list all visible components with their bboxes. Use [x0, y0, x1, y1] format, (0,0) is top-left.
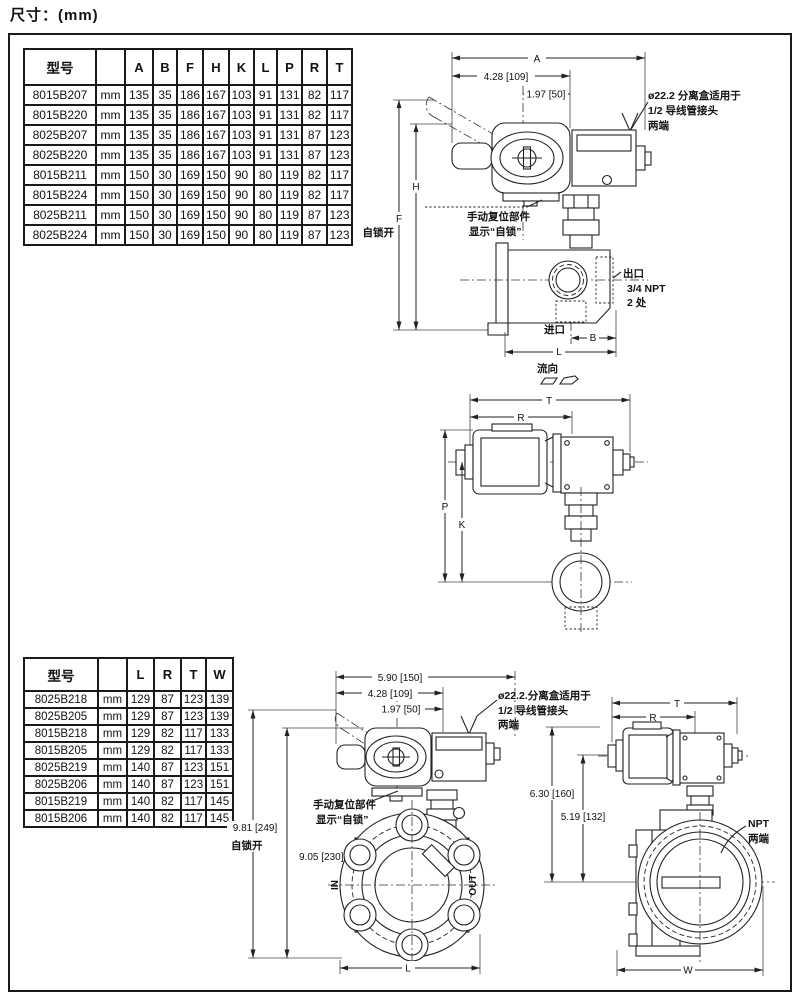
lock-open-label: 自锁开	[363, 226, 395, 239]
value-cell: 103	[229, 105, 254, 125]
value-cell: 117	[181, 725, 206, 742]
annotation-manual-line2: 显示“自锁”	[316, 813, 369, 826]
column-header	[98, 658, 127, 691]
table-row: 8015B206mm14082117145	[24, 810, 233, 827]
value-cell: 167	[203, 125, 229, 145]
value-cell: 82	[302, 165, 327, 185]
value-cell: 80	[254, 165, 277, 185]
table-row: 8015B218mm12982117133	[24, 725, 233, 742]
annotation-conduit-line3: 两端	[648, 119, 669, 132]
flow-direction: 流向	[537, 362, 578, 384]
value-cell: 123	[327, 225, 352, 245]
model-cell: 8025B211	[24, 205, 96, 225]
unit-cell: mm	[98, 691, 127, 708]
value-cell: 82	[302, 85, 327, 105]
value-cell: 30	[153, 165, 177, 185]
value-cell: 135	[125, 85, 153, 105]
value-cell: 123	[327, 125, 352, 145]
value-cell: 80	[254, 185, 277, 205]
value-cell: 186	[177, 105, 203, 125]
value-cell: 87	[154, 708, 181, 725]
table-row: 8015B211mm15030169150908011982117	[24, 165, 352, 185]
value-cell: 117	[327, 165, 352, 185]
value-cell: 123	[181, 691, 206, 708]
value-cell: 35	[153, 85, 177, 105]
model-cell: 8015B220	[24, 105, 96, 125]
outlet-label-line3: 2 处	[627, 296, 647, 309]
coil-assembly	[598, 722, 748, 785]
bolt-icon	[629, 934, 637, 946]
npt-label-line2: 两端	[748, 832, 769, 845]
right-connector	[724, 744, 732, 767]
table-row: 8015B220mm135351861671039113182117	[24, 105, 352, 125]
table-row: 8025B206mm14087123151	[24, 776, 233, 793]
table-row: 8025B219mm14087123151	[24, 759, 233, 776]
table-row: 8025B220mm135351861671039113187123	[24, 145, 352, 165]
value-cell: 35	[153, 125, 177, 145]
dimension-table-2: 型号LRTW8025B218mm129871231398025B205mm129…	[23, 657, 234, 828]
value-cell: 129	[127, 708, 154, 725]
bolt-icon	[629, 903, 637, 915]
value-cell: 186	[177, 85, 203, 105]
model-column-header: 型号	[24, 49, 96, 85]
value-cell: 150	[203, 225, 229, 245]
model-cell: 8015B218	[24, 725, 98, 742]
value-cell: 140	[127, 776, 154, 793]
unit-cell: mm	[96, 205, 125, 225]
unit-cell: mm	[96, 145, 125, 165]
table-row: 8025B218mm12987123139	[24, 691, 233, 708]
value-cell: 119	[277, 165, 302, 185]
column-header: T	[327, 49, 352, 85]
unit-cell: mm	[98, 708, 127, 725]
column-header: F	[177, 49, 203, 85]
in-label: IN	[330, 880, 341, 890]
left-connector	[456, 450, 465, 475]
coil-assembly	[448, 424, 648, 494]
screw-icon	[603, 176, 612, 185]
value-cell: 117	[327, 185, 352, 205]
unit-cell: mm	[96, 125, 125, 145]
table-row: 8025B207mm135351861671039113187123	[24, 125, 352, 145]
flange-body: IN OUT	[328, 800, 497, 974]
value-cell: 117	[327, 105, 352, 125]
reset-plate	[372, 788, 422, 796]
unit-cell: mm	[96, 105, 125, 125]
outlet-label-line1: 出口	[623, 267, 644, 280]
stem-nuts	[563, 195, 599, 248]
value-cell: 90	[229, 225, 254, 245]
outlet-note: 出口 3/4 NPT 2 处	[613, 267, 666, 309]
value-cell: 35	[153, 105, 177, 125]
value-cell: 103	[229, 145, 254, 165]
value-cell: 140	[127, 810, 154, 827]
value-cell: 87	[302, 145, 327, 165]
value-cell: 169	[177, 165, 203, 185]
value-cell: 91	[254, 85, 277, 105]
value-cell: 117	[181, 742, 206, 759]
unit-cell: mm	[96, 225, 125, 245]
datasheet-page: { "title": "尺寸：(mm)", "tables": { "t1": …	[0, 0, 800, 1006]
dimension-table-1: 型号ABFHKLPRT8015B207mm1353518616710391131…	[23, 48, 353, 246]
value-cell: 135	[125, 125, 153, 145]
value-cell: 117	[327, 85, 352, 105]
value-cell: 103	[229, 125, 254, 145]
out-label: OUT	[468, 874, 479, 895]
value-cell: 91	[254, 145, 277, 165]
column-header: R	[154, 658, 181, 691]
annotation-manual-line2: 显示“自锁”	[469, 225, 522, 238]
dimension-label: K	[459, 520, 466, 531]
value-cell: 135	[125, 105, 153, 125]
port-circle	[549, 261, 587, 299]
technical-drawing-valve-side: A 4.28 [109] 1.97 [50] ø22.2 分离盒适用于 1/2 …	[350, 40, 795, 390]
value-cell: 82	[154, 810, 181, 827]
value-cell: 82	[154, 725, 181, 742]
table-row: 8025B224mm15030169150908011987123	[24, 225, 352, 245]
value-cell: 169	[177, 205, 203, 225]
model-cell: 8025B205	[24, 708, 98, 725]
unit-cell: mm	[98, 725, 127, 742]
value-cell: 131	[277, 85, 302, 105]
dimension-label: B	[590, 333, 597, 344]
value-cell: 129	[127, 742, 154, 759]
value-cell: 87	[302, 125, 327, 145]
unit-cell: mm	[96, 85, 125, 105]
reset-plate	[503, 193, 559, 201]
value-cell: 82	[154, 742, 181, 759]
value-cell: 119	[277, 225, 302, 245]
lock-open-label: 自锁开	[231, 839, 263, 852]
value-cell: 150	[125, 205, 153, 225]
left-connector	[608, 745, 616, 767]
dimension-label: P	[442, 502, 449, 513]
value-cell: 129	[127, 691, 154, 708]
right-connector	[613, 450, 623, 475]
header-row: 型号LRTW	[24, 658, 233, 691]
dimension-label: T	[546, 396, 552, 407]
valve-body	[460, 243, 648, 335]
table-row: 8015B224mm15030169150908011982117	[24, 185, 352, 205]
value-cell: 131	[277, 125, 302, 145]
column-header: R	[302, 49, 327, 85]
value-cell: 150	[203, 185, 229, 205]
outlet-label-line2: 3/4 NPT	[627, 283, 666, 295]
value-cell: 167	[203, 145, 229, 165]
value-cell: 103	[229, 85, 254, 105]
value-cell: 150	[203, 165, 229, 185]
dimension-label: 1.97 [50]	[382, 705, 421, 716]
model-cell: 8015B211	[24, 165, 96, 185]
value-cell: 150	[125, 225, 153, 245]
dimension-label: 9.81 [249]	[233, 823, 278, 834]
value-cell: 90	[229, 185, 254, 205]
junction-box	[572, 130, 651, 186]
column-header: T	[181, 658, 206, 691]
dimension-label: 9.05 [230]	[299, 852, 344, 863]
valve-front	[629, 810, 762, 962]
annotation-conduit-line2: 1/2 导线管接头	[648, 104, 719, 117]
model-column-header: 型号	[24, 658, 98, 691]
value-cell: 123	[327, 205, 352, 225]
value-cell: 80	[254, 205, 277, 225]
technical-drawing-valve-front: T R 6.30 [160] 5.19 [132]	[520, 660, 795, 990]
dimension-label: L	[556, 347, 562, 358]
value-cell: 123	[181, 708, 206, 725]
unit-cell: mm	[98, 759, 127, 776]
value-cell: 91	[254, 105, 277, 125]
junction-box	[561, 437, 613, 493]
solenoid-head	[337, 728, 431, 801]
conduit-note: ø22.2 分离盒适用于 1/2 导线管接头 两端	[622, 89, 741, 132]
flow-arrow-icon	[541, 378, 557, 384]
column-header: L	[254, 49, 277, 85]
model-cell: 8025B224	[24, 225, 96, 245]
value-cell: 87	[154, 759, 181, 776]
annotation-manual-line1: 手动复位部件	[467, 210, 530, 223]
value-cell: 82	[154, 793, 181, 810]
inlet-label: 进口	[544, 323, 565, 336]
value-cell: 129	[127, 725, 154, 742]
header-row: 型号ABFHKLPRT	[24, 49, 352, 85]
value-cell: 117	[181, 793, 206, 810]
value-cell: 119	[277, 205, 302, 225]
mount-bracket	[673, 730, 680, 785]
model-cell: 8025B206	[24, 776, 98, 793]
value-cell: 87	[302, 205, 327, 225]
table-row: 8015B205mm12982117133	[24, 742, 233, 759]
unit-cell: mm	[98, 810, 127, 827]
model-cell: 8025B218	[24, 691, 98, 708]
page-title: 尺寸：(mm)	[10, 4, 99, 25]
annotation-conduit-line1: ø22.2 分离盒适用于	[648, 89, 741, 102]
value-cell: 131	[277, 145, 302, 165]
npt-label-line1: NPT	[748, 818, 770, 830]
column-header: H	[203, 49, 229, 85]
screw-icon	[454, 808, 465, 819]
value-cell: 119	[277, 185, 302, 205]
dimension-label: 1.97 [50]	[527, 90, 566, 101]
value-cell: 186	[177, 125, 203, 145]
value-cell: 90	[229, 205, 254, 225]
value-cell: 186	[177, 145, 203, 165]
table-row: 8025B205mm12987123139	[24, 708, 233, 725]
value-cell: 117	[181, 810, 206, 827]
value-cell: 167	[203, 105, 229, 125]
value-cell: 90	[229, 165, 254, 185]
column-header: P	[277, 49, 302, 85]
dimension-label: 4.28 [109]	[484, 72, 529, 83]
dimension-label: W	[683, 966, 693, 977]
bolt-icon	[629, 845, 637, 857]
value-cell: 150	[125, 165, 153, 185]
value-cell: 123	[181, 759, 206, 776]
technical-drawing-coil-side: T R P K	[425, 385, 670, 640]
model-cell: 8025B219	[24, 759, 98, 776]
valve-below	[552, 487, 610, 634]
coil-housing	[623, 728, 673, 784]
value-cell: 123	[327, 145, 352, 165]
unit-cell: mm	[98, 776, 127, 793]
dimension-label: 4.28 [109]	[368, 689, 413, 700]
table-row: 8015B207mm135351861671039113182117	[24, 85, 352, 105]
coil-housing	[473, 430, 547, 494]
junction-box	[432, 733, 500, 781]
value-cell: 91	[254, 125, 277, 145]
value-cell: 140	[127, 759, 154, 776]
model-cell: 8015B224	[24, 185, 96, 205]
annotation-manual-line1: 手动复位部件	[313, 798, 376, 811]
column-header: A	[125, 49, 153, 85]
model-cell: 8025B207	[24, 125, 96, 145]
model-cell: 8015B219	[24, 793, 98, 810]
value-cell: 80	[254, 225, 277, 245]
model-cell: 8015B206	[24, 810, 98, 827]
flow-arrow-icon	[560, 376, 578, 384]
value-cell: 169	[177, 225, 203, 245]
model-cell: 8015B207	[24, 85, 96, 105]
dimension-label: F	[396, 214, 402, 225]
value-cell: 167	[203, 85, 229, 105]
value-cell: 87	[154, 776, 181, 793]
value-cell: 131	[277, 105, 302, 125]
value-cell: 123	[181, 776, 206, 793]
value-cell: 140	[127, 793, 154, 810]
solenoid-head	[452, 123, 570, 206]
unit-cell: mm	[96, 165, 125, 185]
mount-bracket	[553, 434, 561, 492]
junction-box	[680, 733, 724, 783]
value-cell: 35	[153, 145, 177, 165]
dimension-label: R	[517, 413, 524, 424]
table-row: 8015B219mm14082117145	[24, 793, 233, 810]
value-cell: 135	[125, 145, 153, 165]
unit-cell: mm	[96, 185, 125, 205]
surface-mark-icon	[461, 716, 477, 734]
dimension-label: 5.90 [150]	[378, 673, 423, 684]
dimension-label: T	[674, 699, 680, 710]
value-cell: 87	[154, 691, 181, 708]
value-cell: 169	[177, 185, 203, 205]
value-cell: 82	[302, 105, 327, 125]
model-cell: 8015B205	[24, 742, 98, 759]
dimension-label: A	[534, 54, 541, 65]
value-cell: 87	[302, 225, 327, 245]
screw-icon	[435, 770, 443, 778]
flow-label: 流向	[537, 362, 558, 375]
dimension-label: 6.30 [160]	[530, 789, 575, 800]
column-header	[96, 49, 125, 85]
position-indicator	[662, 877, 720, 888]
value-cell: 150	[203, 205, 229, 225]
value-cell: 30	[153, 185, 177, 205]
value-cell: 30	[153, 205, 177, 225]
column-header: L	[127, 658, 154, 691]
unit-cell: mm	[98, 742, 127, 759]
column-header: B	[153, 49, 177, 85]
value-cell: 150	[125, 185, 153, 205]
table-row: 8025B211mm15030169150908011987123	[24, 205, 352, 225]
model-cell: 8025B220	[24, 145, 96, 165]
value-cell: 30	[153, 225, 177, 245]
dimension-label: H	[412, 182, 419, 193]
unit-cell: mm	[98, 793, 127, 810]
dimension-label: L	[405, 964, 411, 975]
annotation-conduit-line3: 两端	[498, 718, 519, 731]
dimension-label: 5.19 [132]	[561, 812, 606, 823]
value-cell: 82	[302, 185, 327, 205]
column-header: K	[229, 49, 254, 85]
